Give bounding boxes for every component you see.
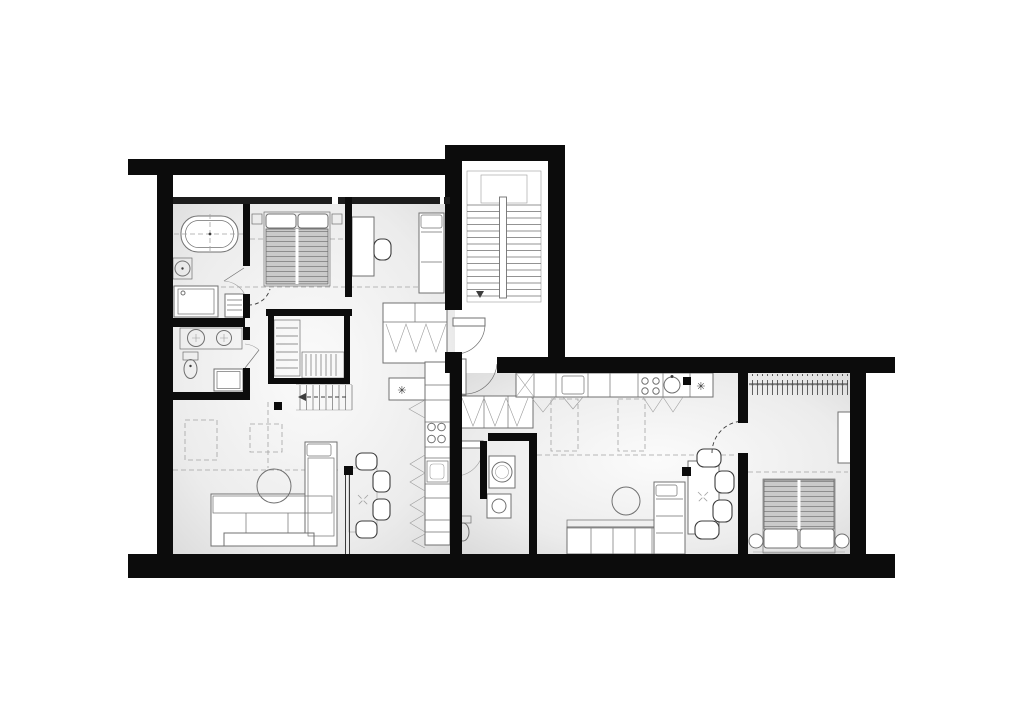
fridge-left bbox=[389, 378, 425, 400]
bathtub-drain bbox=[209, 233, 212, 236]
pillow-3 bbox=[764, 529, 798, 548]
closet-wall-south bbox=[268, 378, 350, 384]
railing-post bbox=[344, 466, 353, 475]
window-gap-1 bbox=[332, 197, 338, 204]
floor-plan-page: ✳ ✳ bbox=[0, 0, 1024, 724]
washing-machine bbox=[489, 456, 515, 488]
sofa2-chaise bbox=[654, 482, 685, 554]
shower-room-wall-top bbox=[243, 327, 250, 340]
toilet-detail bbox=[189, 365, 191, 367]
wc-wall-top-b bbox=[488, 433, 537, 441]
outer-wall-bottom bbox=[128, 554, 895, 578]
counter-column bbox=[683, 377, 691, 385]
towel-ladder bbox=[225, 294, 244, 317]
window-gap-2 bbox=[440, 197, 444, 204]
entry-wall-right bbox=[497, 357, 548, 373]
bedside-table-2 bbox=[835, 534, 849, 548]
outer-wall-left bbox=[157, 159, 173, 578]
stairwell-wall-left bbox=[445, 145, 462, 310]
sink-tap bbox=[671, 375, 674, 378]
shower-room-wall-bottom bbox=[243, 368, 250, 392]
bedroom2-wall-lower bbox=[738, 453, 748, 554]
duvet-split bbox=[296, 229, 299, 284]
pillow-2 bbox=[298, 214, 328, 228]
dining2-chair-2 bbox=[715, 471, 734, 493]
entry-door-left-leaf bbox=[453, 318, 485, 326]
bedroom-divider-wall bbox=[345, 197, 352, 297]
pillow-1 bbox=[266, 214, 296, 228]
dining-chair-1 bbox=[356, 453, 377, 470]
bedroom2-wall-upper bbox=[738, 373, 748, 423]
pillow-4 bbox=[800, 529, 834, 548]
shower-tray bbox=[174, 286, 218, 317]
window-wall-north bbox=[173, 197, 450, 204]
desk-2 bbox=[838, 412, 851, 463]
railing-post-2 bbox=[682, 467, 691, 476]
sofa-chaise bbox=[305, 442, 337, 546]
wc-wall-top-a bbox=[450, 433, 462, 441]
stair-stringer bbox=[500, 197, 507, 298]
dining-chair-2 bbox=[373, 471, 390, 492]
stairwell-wall-top bbox=[445, 145, 565, 161]
laundry-sink-unit bbox=[487, 494, 511, 518]
single-bed bbox=[419, 213, 444, 293]
party-wall bbox=[450, 362, 462, 554]
entry-hall-right bbox=[460, 396, 533, 428]
floor-plan-canvas: ✳ ✳ bbox=[0, 0, 1024, 724]
wc-wall-east bbox=[529, 441, 537, 554]
dining2-chair-4 bbox=[695, 521, 719, 539]
outer-wall-top-left bbox=[128, 159, 450, 175]
closet-wall-west bbox=[268, 316, 274, 378]
outer-wall-right bbox=[850, 373, 866, 554]
desk-chair bbox=[374, 239, 391, 260]
dining2-chair-1 bbox=[697, 449, 721, 467]
washbasin-drain bbox=[181, 267, 183, 269]
stairwell-wall-right bbox=[548, 145, 565, 373]
column-left bbox=[274, 402, 282, 410]
desk bbox=[352, 217, 374, 276]
duvet-2-split bbox=[798, 480, 801, 529]
bedside-table-1 bbox=[749, 534, 763, 548]
dining-chair-4 bbox=[356, 521, 377, 538]
closet-wall-east bbox=[344, 316, 350, 384]
fridge-symbol-right: ✳ bbox=[696, 380, 705, 393]
dining2-chair-3 bbox=[713, 500, 732, 522]
hall-wardrobe bbox=[460, 396, 533, 428]
closet-wall-north bbox=[266, 309, 352, 316]
bath-divider-wall bbox=[173, 318, 245, 327]
kitchen-run bbox=[425, 362, 450, 545]
shower-2 bbox=[214, 369, 243, 391]
sofa-ottoman bbox=[224, 533, 314, 546]
closet-wall-stub bbox=[243, 309, 248, 316]
fridge-symbol-left: ✳ bbox=[397, 384, 406, 397]
wc-divider-wall bbox=[480, 441, 487, 499]
dining-chair-3 bbox=[373, 499, 390, 520]
outer-wall-top-right bbox=[548, 357, 895, 373]
bath-wall-upper bbox=[243, 204, 250, 266]
shower-room-wall-south bbox=[173, 392, 250, 400]
